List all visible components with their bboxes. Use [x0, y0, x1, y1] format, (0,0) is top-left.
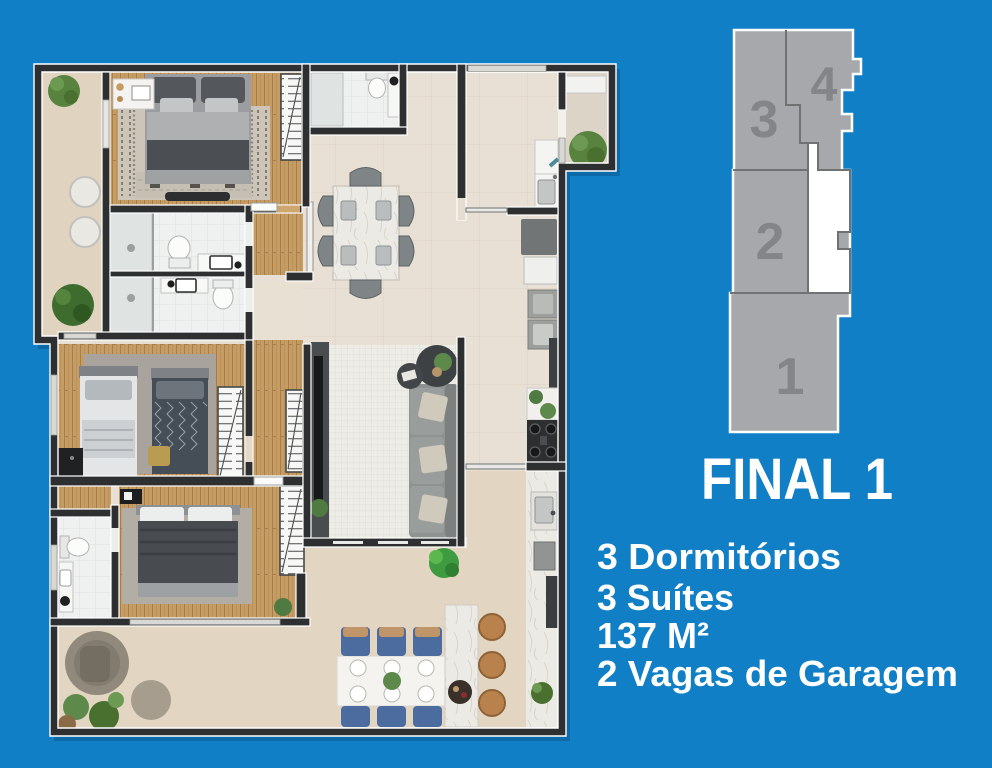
svg-text:137 M²: 137 M²	[597, 615, 709, 656]
svg-text:3 Dormitórios: 3 Dormitórios	[597, 536, 841, 577]
svg-text:2: 2	[756, 213, 785, 271]
svg-text:FINAL 1: FINAL 1	[701, 447, 893, 512]
svg-text:4: 4	[811, 59, 838, 112]
svg-text:1: 1	[776, 348, 805, 406]
svg-text:3 Suítes: 3 Suítes	[597, 577, 734, 618]
svg-text:3: 3	[750, 91, 779, 149]
svg-text:2 Vagas de Garagem: 2 Vagas de Garagem	[597, 653, 958, 694]
